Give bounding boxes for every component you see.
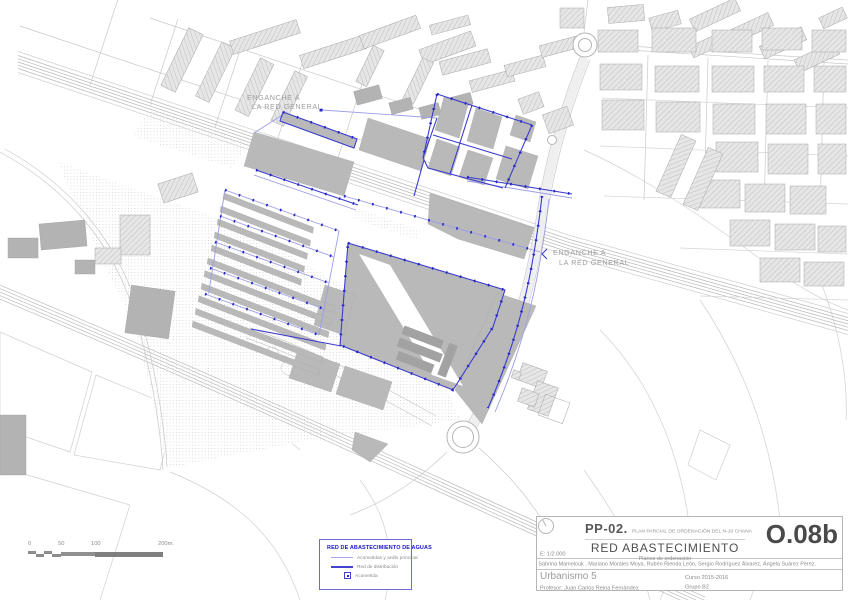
north-arrow-icon bbox=[537, 517, 555, 535]
legend-box: RED DE ABASTECIMIENTO DE AGUAS Acometida… bbox=[319, 539, 412, 590]
church-complex bbox=[502, 360, 577, 423]
drawing-scale: E: 1/2.000 bbox=[540, 551, 566, 557]
legend-item-red-distribucion: Red de distribución bbox=[331, 562, 411, 571]
legend-item-label: Acometida bbox=[355, 573, 378, 578]
course-year: Curso 2015-2016 bbox=[685, 574, 728, 580]
light-blue-line-icon bbox=[331, 557, 353, 558]
title-block: PP-02. PLAN PARCIAL DE ORDENACIÓN DEL N-… bbox=[536, 516, 843, 591]
enganche-right-label-line2: LA RED GENERAL bbox=[559, 258, 629, 267]
enganche-top-label-line2: LA RED GENERAL bbox=[252, 102, 322, 111]
scale-label-100: 100 bbox=[91, 540, 101, 546]
plan-code: PP-02. bbox=[585, 521, 628, 536]
title-block-course-row: Urbanismo 5 Profesor: Juan Carlos Reina … bbox=[537, 570, 842, 592]
blue-line-icon bbox=[331, 566, 353, 568]
legend-item-label: Red de distribución bbox=[357, 564, 398, 569]
legend-title: RED DE ABASTECIMIENTO DE AGUAS bbox=[327, 544, 384, 550]
site-plan-map: ENGANCHE A LA RED GENERAL ENGANCHE A LA … bbox=[0, 0, 848, 600]
scale-bar-graphic bbox=[28, 551, 178, 558]
plan-sheet: ENGANCHE A LA RED GENERAL ENGANCHE A LA … bbox=[0, 0, 848, 600]
scale-bar-labels: 0 50 100 200m. bbox=[28, 540, 178, 549]
enganche-top-label-line1: ENGANCHE A bbox=[247, 93, 300, 102]
title-block-authors-row: Sabrina Mamelouk , Mariano Morales Moya,… bbox=[537, 559, 842, 570]
group-label: Grupo B2 bbox=[685, 584, 709, 590]
scale-label-200: 200m. bbox=[158, 540, 174, 546]
course-name: Urbanismo 5 bbox=[540, 571, 597, 582]
sheet-number: O.08b bbox=[766, 519, 838, 550]
title-block-header: PP-02. PLAN PARCIAL DE ORDENACIÓN DEL N-… bbox=[537, 517, 842, 559]
scale-label-0: 0 bbox=[28, 540, 31, 546]
plan-name: PLAN PARCIAL DE ORDENACIÓN DEL N-10 CHAN… bbox=[632, 528, 752, 534]
enganche-right-label-line1: ENGANCHE A bbox=[553, 248, 606, 257]
legend-item-label: Acometidas y anillo principal bbox=[357, 555, 418, 560]
scale-bar: 0 50 100 200m. bbox=[28, 540, 178, 558]
scale-label-50: 50 bbox=[58, 540, 64, 546]
legend-item-acometidas-anillo: Acometidas y anillo principal bbox=[331, 553, 411, 562]
authors: Sabrina Mamelouk , Mariano Morales Moya,… bbox=[537, 561, 744, 568]
professor-name: Profesor: Juan Carlos Reina Fernández bbox=[540, 585, 639, 591]
sheet-title: RED ABASTECIMIENTO bbox=[585, 541, 745, 555]
legend-item-acometida: Acometida bbox=[331, 571, 411, 580]
acometida-square-icon bbox=[344, 572, 351, 579]
